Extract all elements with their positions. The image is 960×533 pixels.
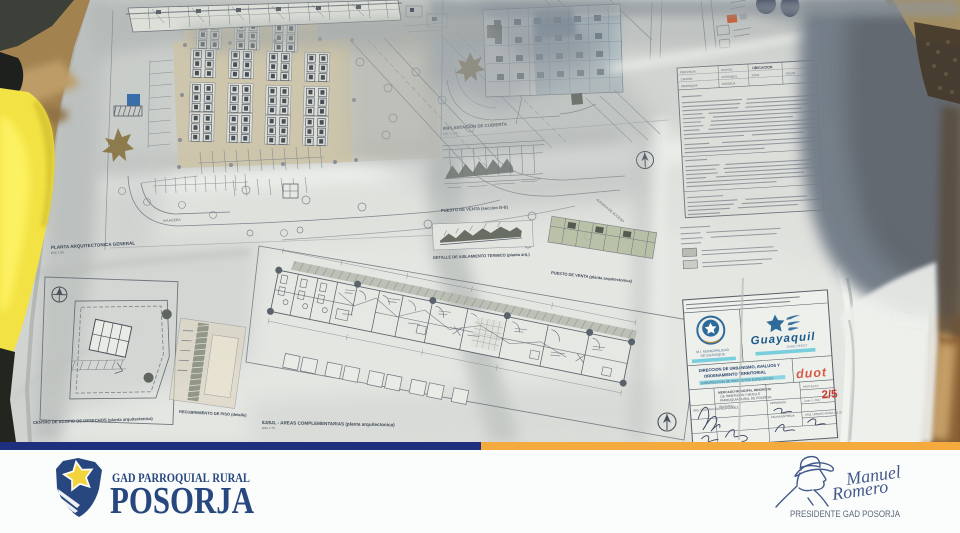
svg-text:ESC 1:50: ESC 1:50 bbox=[51, 250, 64, 255]
svg-text:POSORJA: POSORJA bbox=[722, 81, 736, 86]
svg-text:CANTON: CANTON bbox=[681, 77, 693, 82]
svg-text:SOLAR: SOLAR bbox=[785, 71, 795, 76]
svg-text:ESC 1:75: ESC 1:75 bbox=[262, 426, 275, 430]
svg-text:GUAYAS: GUAYAS bbox=[721, 67, 733, 72]
svg-text:POSORJA: POSORJA bbox=[110, 480, 254, 522]
svg-text:ZONA: ZONA bbox=[751, 73, 759, 77]
svg-text:duot: duot bbox=[796, 365, 828, 381]
svg-text:2/5: 2/5 bbox=[821, 388, 838, 401]
svg-text:PRESIDENTE GAD POSORJA: PRESIDENTE GAD POSORJA bbox=[790, 509, 901, 520]
